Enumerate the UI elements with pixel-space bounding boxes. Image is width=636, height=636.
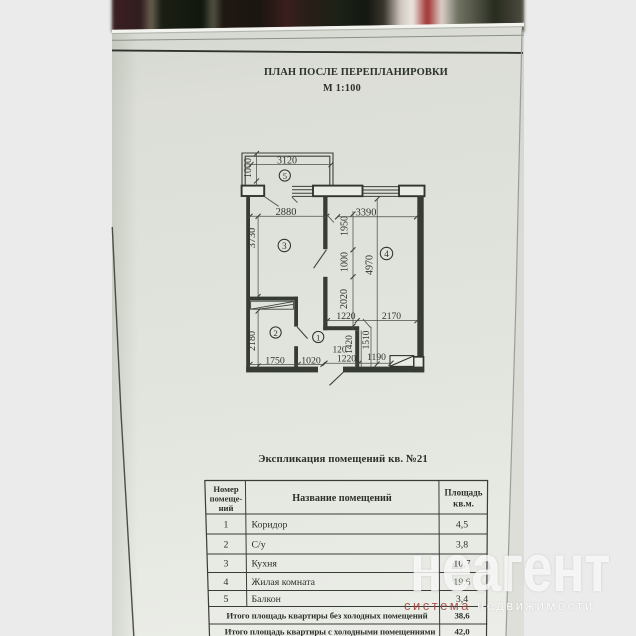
svg-text:4: 4 [224,577,229,588]
svg-text:Жилая комната: Жилая комната [252,577,316,588]
svg-text:2880: 2880 [276,207,297,218]
svg-text:кв.м.: кв.м. [453,499,474,509]
svg-text:1220: 1220 [337,354,356,365]
svg-text:ний: ний [219,503,234,513]
svg-text:1020: 1020 [301,355,321,366]
svg-text:Кухня: Кухня [252,559,278,570]
svg-text:2170: 2170 [382,311,401,322]
svg-text:1000: 1000 [243,158,254,178]
svg-text:1: 1 [224,519,229,530]
svg-text:1: 1 [316,332,320,342]
svg-text:1220: 1220 [336,311,355,322]
svg-text:Номер: Номер [213,484,238,494]
svg-text:3390: 3390 [356,207,377,218]
svg-text:помеще-: помеще- [210,494,243,504]
svg-text:1420: 1420 [345,335,355,354]
svg-text:Итого площадь квартиры с холод: Итого площадь квартиры с холодными помещ… [225,627,436,636]
svg-text:4970: 4970 [364,255,375,275]
svg-text:3: 3 [224,559,229,570]
svg-text:М 1:100: М 1:100 [323,83,361,94]
svg-text:1000: 1000 [340,252,351,272]
svg-text:С/у: С/у [252,539,266,550]
svg-text:ПЛАН ПОСЛЕ ПЕРЕПЛАНИРОВКИ: ПЛАН ПОСЛЕ ПЕРЕПЛАНИРОВКИ [264,67,448,78]
svg-text:Балкон: Балкон [252,594,282,605]
svg-text:Итого площадь квартиры без хол: Итого площадь квартиры без холодных поме… [226,611,427,621]
svg-text:2: 2 [224,539,229,550]
svg-text:Название помещений: Название помещений [292,493,392,504]
svg-text:2: 2 [273,328,277,338]
svg-text:Площадь: Площадь [445,488,483,498]
svg-text:5: 5 [283,171,288,181]
svg-text:4,5: 4,5 [456,519,468,530]
svg-text:1750: 1750 [265,355,285,366]
svg-text:1950: 1950 [340,216,351,236]
svg-text:3120: 3120 [277,155,297,166]
svg-text:Коридор: Коридор [252,519,288,530]
svg-text:3: 3 [282,241,287,251]
svg-text:2180: 2180 [247,331,258,351]
svg-text:Экспликация помещений кв. №21: Экспликация помещений кв. №21 [258,453,428,465]
svg-text:42,0: 42,0 [455,627,471,636]
svg-text:1510: 1510 [362,330,372,349]
svg-text:5: 5 [224,594,229,605]
svg-text:4: 4 [384,249,389,259]
svg-text:1190: 1190 [367,352,386,363]
svg-text:3730: 3730 [247,228,258,248]
svg-text:2020: 2020 [339,289,350,309]
